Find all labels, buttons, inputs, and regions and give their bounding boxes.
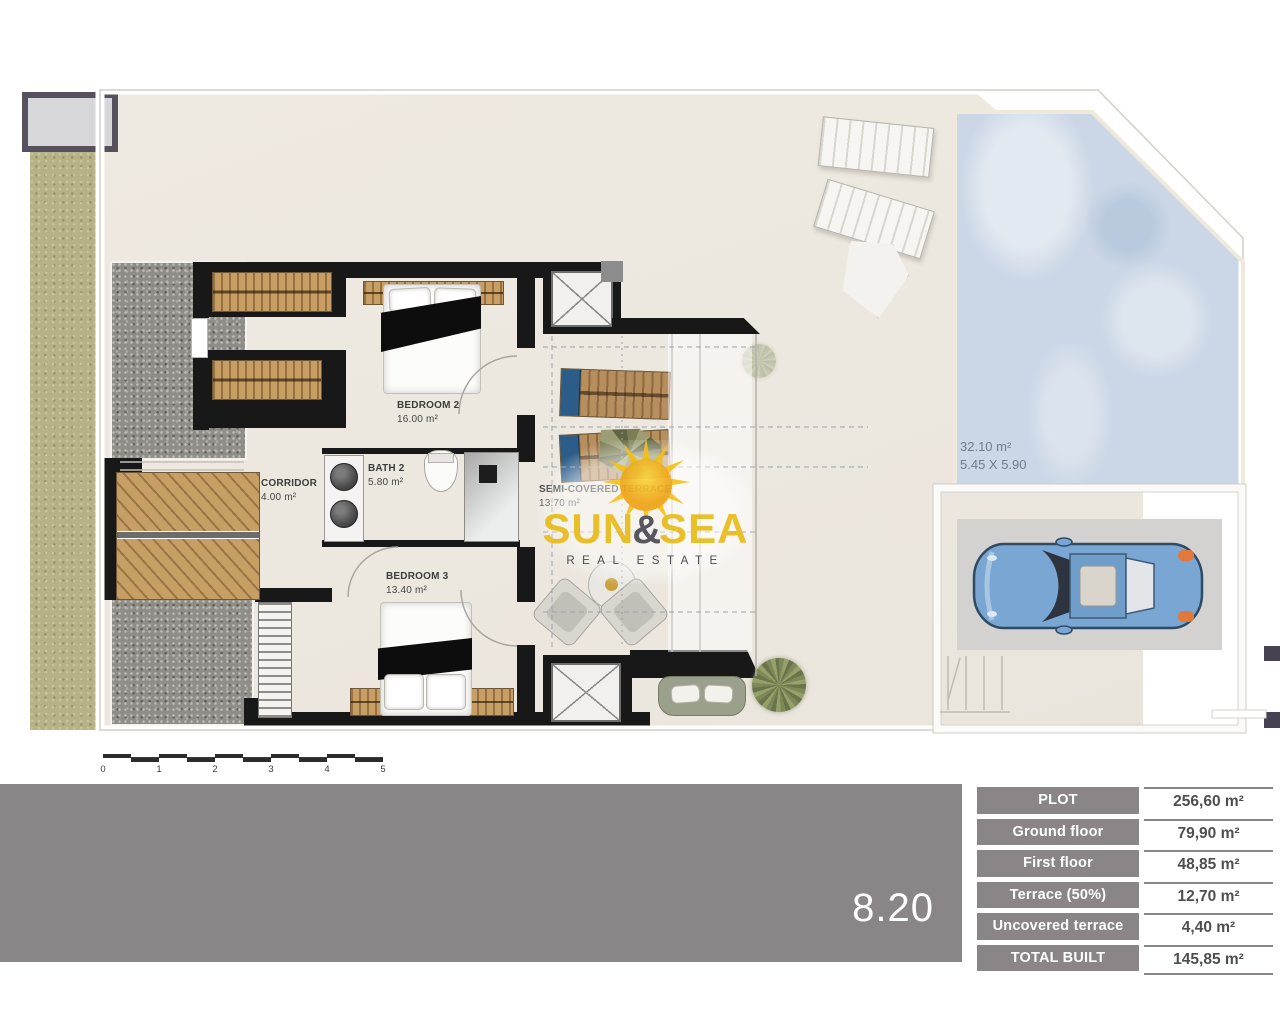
- garden-sofa: [658, 676, 746, 716]
- areas-table: PLOT 256,60 m² Ground floor 79,90 m² Fir…: [977, 787, 1273, 975]
- shrub-plant: [752, 658, 806, 712]
- window-west: [191, 318, 208, 358]
- room-name: BEDROOM 2: [397, 400, 459, 411]
- agency-logo: SUN & SEA REAL ESTATE: [548, 446, 743, 578]
- table-row-label: Terrace (50%): [977, 882, 1139, 909]
- room-name: BEDROOM 3: [386, 571, 448, 582]
- label-bath2: BATH 2 5.80 m²: [368, 462, 405, 489]
- shower: [464, 452, 519, 542]
- pool-dimensions: 5.45 X 5.90: [960, 457, 1027, 472]
- terrace-north-wall: [612, 318, 760, 334]
- swimming-pool: [955, 112, 1243, 490]
- corridor-south-wall: [255, 588, 332, 602]
- gate-post-2: [1264, 712, 1280, 728]
- table-row-label: Uncovered terrace: [977, 913, 1139, 940]
- table-row-label: PLOT: [977, 787, 1139, 814]
- garden-strip: [30, 152, 100, 730]
- table-row-value: 12,70 m²: [1144, 882, 1273, 911]
- wall-bedroom2-east-a: [517, 278, 535, 348]
- logo-ampersand: &: [632, 510, 661, 550]
- scale-segment: [271, 754, 299, 758]
- table-row-label: TOTAL BUILT: [977, 945, 1139, 972]
- label-bedroom3: BEDROOM 3 13.40 m²: [386, 570, 448, 597]
- bed3-pillow-1: [384, 674, 424, 710]
- site-plan: BEDROOM 2 16.00 m² CORRIDOR 4.00 m² BATH…: [0, 0, 1280, 784]
- scale-number: 5: [377, 764, 389, 775]
- wardrobe-2: [212, 360, 322, 400]
- room-area: 13.40 m²: [386, 585, 427, 596]
- footer-bar: 8.20: [0, 784, 962, 962]
- lounger-headrest-icon: [560, 369, 581, 416]
- scale-number: 3: [265, 764, 277, 775]
- table-row-label: Ground floor: [977, 819, 1139, 846]
- column-top: [601, 261, 623, 282]
- bed3-nightstand-right: [468, 688, 514, 716]
- scale-bar: 0 1 2 3 4 5: [103, 748, 393, 780]
- scale-segment: [187, 758, 215, 762]
- pool-area: 32.10 m²: [960, 439, 1011, 454]
- logo-tagline: REAL ESTATE: [548, 555, 743, 567]
- shower-drain: [479, 465, 497, 483]
- wardrobe-1: [212, 272, 332, 312]
- logo-word-sun: SUN: [543, 508, 635, 550]
- table-row-value: 48,85 m²: [1144, 850, 1273, 879]
- terrace-south-wall: [630, 650, 760, 678]
- label-corridor: CORRIDOR 4.00 m²: [261, 477, 317, 504]
- stair-rail: [117, 531, 259, 539]
- shaft-bottom: [551, 663, 621, 722]
- scale-segment: [327, 754, 355, 758]
- stair-west-wall: [100, 458, 116, 600]
- entrance-box: [22, 92, 118, 152]
- table-row-value: 145,85 m²: [1144, 945, 1273, 976]
- table-row-value: 4,40 m²: [1144, 913, 1273, 942]
- sofa-cushion-2: [704, 684, 734, 703]
- wall-bedroom3-east-a: [517, 547, 535, 602]
- room-area: 4.00 m²: [261, 492, 296, 503]
- parking-paving: [957, 519, 1222, 650]
- table-row-value: 79,90 m²: [1144, 819, 1273, 848]
- scale-number: 2: [209, 764, 221, 775]
- scale-number: 1: [153, 764, 165, 775]
- scale-segment: [355, 758, 383, 762]
- room-name: BATH 2: [368, 463, 405, 474]
- label-bedroom2: BEDROOM 2 16.00 m²: [397, 399, 459, 426]
- gravel-area-bottom: [110, 598, 254, 726]
- scale-segment: [299, 758, 327, 762]
- shrub-plant-small: [742, 344, 776, 378]
- room-area: 5.80 m²: [368, 477, 403, 488]
- wall-bedroom2-east-b: [517, 415, 535, 462]
- washbasin-2: [330, 500, 358, 528]
- room-area: 16.00 m²: [397, 414, 438, 425]
- logo-word-sea: SEA: [659, 508, 748, 550]
- scale-number: 0: [97, 764, 109, 775]
- scale-segment: [131, 758, 159, 762]
- sofa-cushion-1: [670, 684, 700, 704]
- plan-number: 8.20: [852, 886, 934, 931]
- scale-segment: [243, 758, 271, 762]
- bed3-pillow-2: [426, 674, 466, 710]
- table-row-value: 256,60 m²: [1144, 787, 1273, 816]
- table-row-label: First floor: [977, 850, 1139, 877]
- scale-segment: [159, 754, 187, 758]
- louver-closet: [258, 602, 292, 718]
- washbasin-1: [330, 463, 358, 491]
- floor-plan-page: BEDROOM 2 16.00 m² CORRIDOR 4.00 m² BATH…: [0, 0, 1280, 1024]
- label-pool: 32.10 m² 5.45 X 5.90: [960, 438, 1027, 473]
- wall-bedroom3-east-b: [517, 645, 535, 715]
- stair-block-top: [100, 458, 142, 472]
- scale-segment: [215, 754, 243, 758]
- scale-segment: [103, 754, 131, 758]
- scale-number: 4: [321, 764, 333, 775]
- staircase: [116, 472, 260, 600]
- terrace-lounger-1: [559, 368, 671, 420]
- room-name: CORRIDOR: [261, 478, 317, 489]
- gate-post-1: [1264, 646, 1280, 661]
